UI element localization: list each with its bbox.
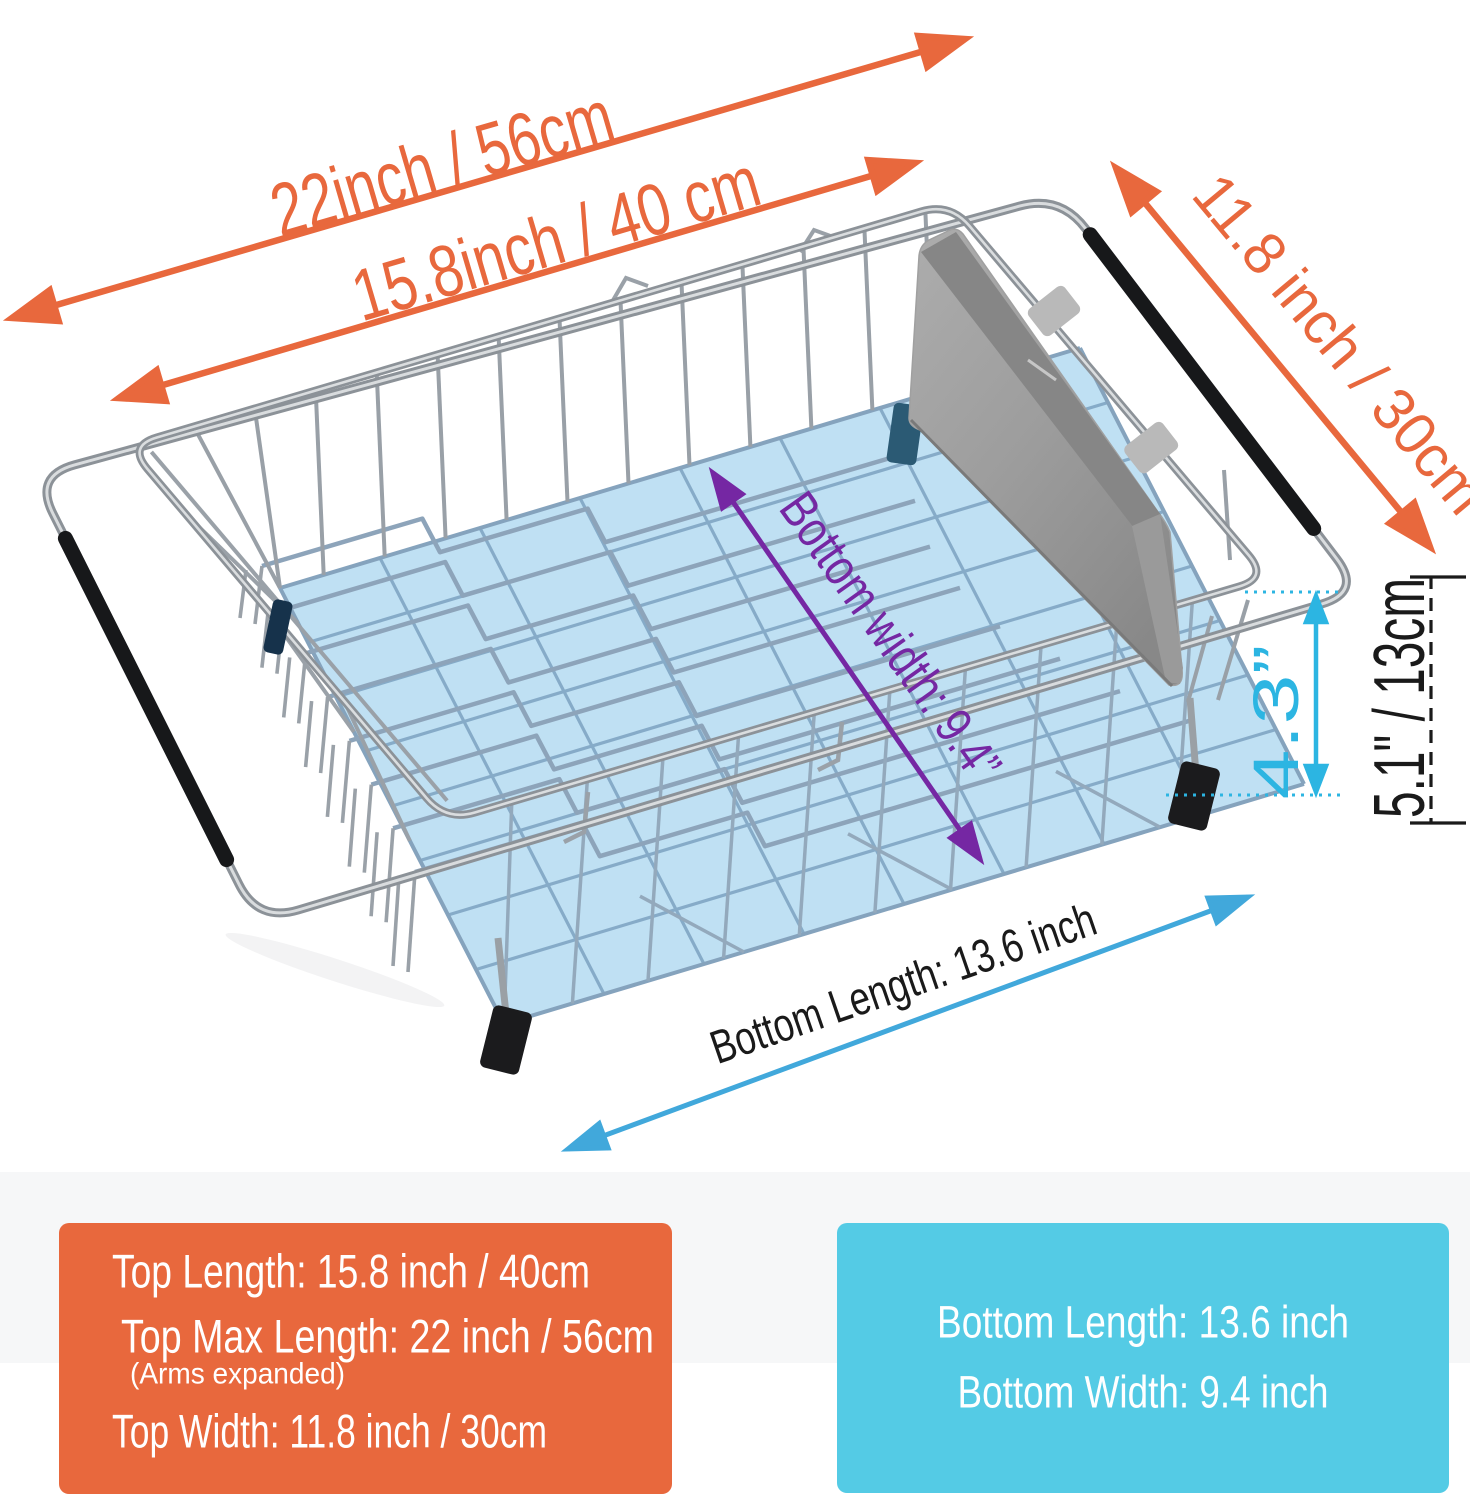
svg-text:Top Length: 15.8 inch / 40cm: Top Length: 15.8 inch / 40cm xyxy=(112,1245,590,1298)
svg-text:5.1" / 13cm: 5.1" / 13cm xyxy=(1360,578,1440,818)
svg-text:Bottom Length: 13.6 inch: Bottom Length: 13.6 inch xyxy=(937,1297,1349,1348)
svg-text:(Arms expanded): (Arms expanded) xyxy=(130,1358,345,1391)
svg-text:Bottom Width: 9.4 inch: Bottom Width: 9.4 inch xyxy=(958,1367,1329,1418)
svg-text:Top Max Length: 22 inch / 56c: Top Max Length: 22 inch / 56cm xyxy=(121,1310,654,1363)
svg-text:4.3”: 4.3” xyxy=(1240,645,1312,800)
svg-text:Top Width: 11.8 inch / 30cm: Top Width: 11.8 inch / 30cm xyxy=(112,1405,547,1458)
